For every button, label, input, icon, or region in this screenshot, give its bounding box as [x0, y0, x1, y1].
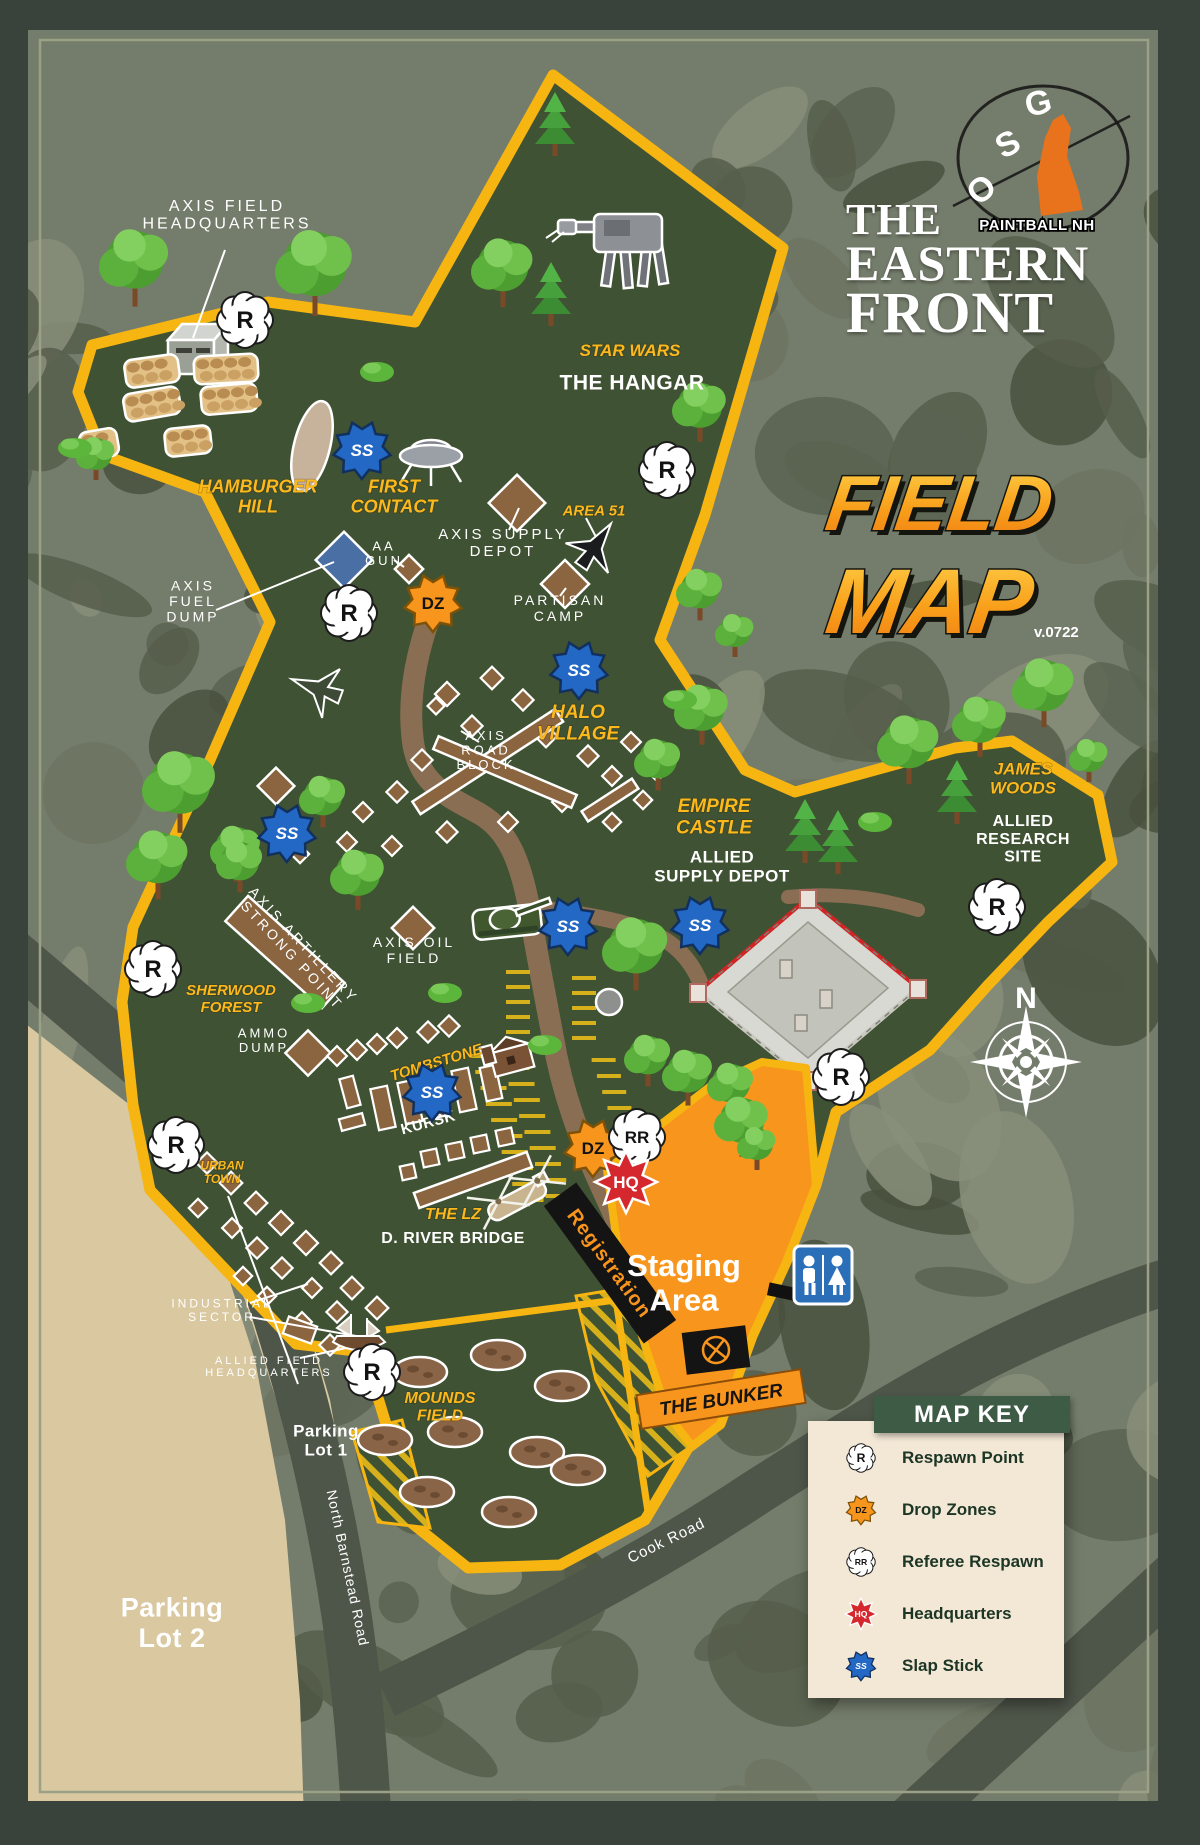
field-map-poster: AXIS FIELDHEADQUARTERSHAMBURGERHILLFIRST…: [0, 0, 1200, 1845]
key-label-dropzones: Drop Zones: [902, 1500, 996, 1520]
label-ammo-dump: AMMODUMP: [238, 1025, 290, 1055]
r-marker: R: [813, 1049, 869, 1105]
hay-bale-wall: [200, 382, 263, 415]
dirt-mound: [400, 1477, 454, 1507]
svg-text:DZ: DZ: [855, 1505, 867, 1515]
hay-bale-wall: [193, 353, 258, 384]
svg-text:R: R: [167, 1132, 184, 1159]
field-word: FIELD: [821, 459, 1059, 547]
label-compass-n: N: [1015, 982, 1037, 1015]
r-marker: R: [217, 292, 273, 348]
label-urban-town: URBANTOWN: [200, 1159, 244, 1186]
key-label-respawn: Respawn Point: [902, 1448, 1024, 1468]
r-marker: R: [639, 442, 695, 498]
label-axis-road-block: AXISROADBLOCK: [456, 728, 515, 772]
svg-text:SS: SS: [689, 916, 712, 935]
brand-letter-s: S: [989, 122, 1027, 166]
key-label-slapstick: Slap Stick: [902, 1656, 983, 1676]
key-row-referee: RR Referee Respawn: [838, 1539, 1044, 1585]
hay-bale-wall: [164, 425, 213, 458]
label-empire-castle: EMPIRECASTLE: [676, 796, 753, 838]
map-key-title: MAP KEY: [874, 1396, 1070, 1433]
dirt-mound: [535, 1371, 589, 1401]
svg-text:RR: RR: [625, 1128, 650, 1147]
dirt-mound: [358, 1425, 412, 1455]
hay-bale-wall: [123, 353, 180, 388]
dz-marker: DZ: [846, 1496, 875, 1525]
svg-text:R: R: [857, 1451, 866, 1465]
bush: [360, 362, 394, 382]
version-label: v.0722: [1034, 624, 1079, 641]
brand-sub: PAINTBALL NH: [979, 217, 1094, 234]
svg-text:HQ: HQ: [855, 1609, 868, 1619]
osg-logo: O S G PAINTBALL NH: [925, 58, 1155, 243]
bush: [663, 690, 697, 710]
title-front: FRONT: [846, 286, 1076, 339]
svg-text:R: R: [988, 894, 1005, 921]
svg-text:R: R: [658, 457, 675, 484]
svg-text:DZ: DZ: [582, 1139, 605, 1158]
r-marker: R: [148, 1117, 204, 1173]
label-james-woods: JAMESWOODS: [990, 760, 1057, 798]
key-row-dropzones: DZ Drop Zones: [838, 1487, 996, 1533]
boulder: [596, 989, 622, 1015]
svg-text:SS: SS: [568, 661, 591, 680]
key-row-headquarters: HQ Headquarters: [838, 1591, 1012, 1637]
r-marker: R: [969, 879, 1025, 935]
dirt-mound: [471, 1340, 525, 1370]
respawn-point-icon: R: [838, 1435, 884, 1481]
rr-marker: RR: [847, 1548, 875, 1576]
dirt-mound: [393, 1357, 447, 1387]
label-axis-fuel-dump: AXISFUELDUMP: [166, 577, 219, 624]
svg-text:R: R: [340, 600, 357, 627]
map-key-panel: MAP KEY R Respawn Point DZ Drop Zones RR…: [808, 1421, 1064, 1698]
bush: [858, 812, 892, 832]
svg-text:R: R: [236, 307, 253, 334]
label-star-wars: STAR WARS: [580, 341, 681, 360]
svg-text:R: R: [363, 1359, 380, 1386]
label-allied-field-headquarters: ALLIED FIELDHEADQUARTERS: [205, 1355, 332, 1379]
label-area-51: AREA 51: [562, 502, 626, 519]
brand-letter-o: O: [959, 167, 1004, 213]
svg-text:HQ: HQ: [613, 1173, 639, 1192]
bunker-flag: [682, 1325, 751, 1374]
svg-text:SS: SS: [276, 824, 299, 843]
r-marker: R: [125, 941, 181, 997]
headquarters-icon: HQ: [838, 1591, 884, 1637]
svg-text:SS: SS: [351, 441, 374, 460]
key-row-respawn: R Respawn Point: [838, 1435, 1024, 1481]
dirt-mound: [551, 1455, 605, 1485]
bush: [428, 983, 462, 1003]
svg-text:RR: RR: [855, 1557, 868, 1567]
svg-text:DZ: DZ: [422, 594, 445, 613]
bush: [528, 1035, 562, 1055]
label-the-lz: THE LZ: [425, 1206, 482, 1223]
hq-marker: HQ: [595, 1151, 657, 1213]
r-marker: R: [847, 1444, 875, 1472]
svg-text:SS: SS: [557, 917, 580, 936]
r-marker: R: [321, 585, 377, 641]
dirt-mound: [482, 1497, 536, 1527]
svg-text:SS: SS: [855, 1661, 867, 1671]
ss-marker: SS: [846, 1652, 875, 1681]
drop-zones-icon: DZ: [838, 1487, 884, 1533]
label-the-hangar: THE HANGAR: [560, 372, 705, 395]
hq-marker: HQ: [845, 1598, 876, 1629]
referee-respawn-icon: RR: [838, 1539, 884, 1585]
slap-stick-icon: SS: [838, 1643, 884, 1689]
svg-text:SS: SS: [421, 1083, 444, 1102]
bush: [58, 438, 92, 458]
map-word: MAP: [821, 549, 1040, 652]
rr-marker: RR: [609, 1109, 665, 1165]
r-marker: R: [344, 1344, 400, 1400]
label-d-river-bridge: D. RIVER BRIDGE: [381, 1230, 525, 1247]
key-row-slapstick: SS Slap Stick: [838, 1643, 983, 1689]
svg-text:R: R: [832, 1064, 849, 1091]
brand-letter-g: G: [1021, 82, 1056, 125]
nh-state-shape: [1037, 114, 1083, 216]
key-label-referee: Referee Respawn: [902, 1552, 1044, 1572]
restrooms-icon: [794, 1246, 852, 1304]
svg-text:R: R: [144, 956, 161, 983]
key-label-headquarters: Headquarters: [902, 1604, 1012, 1624]
